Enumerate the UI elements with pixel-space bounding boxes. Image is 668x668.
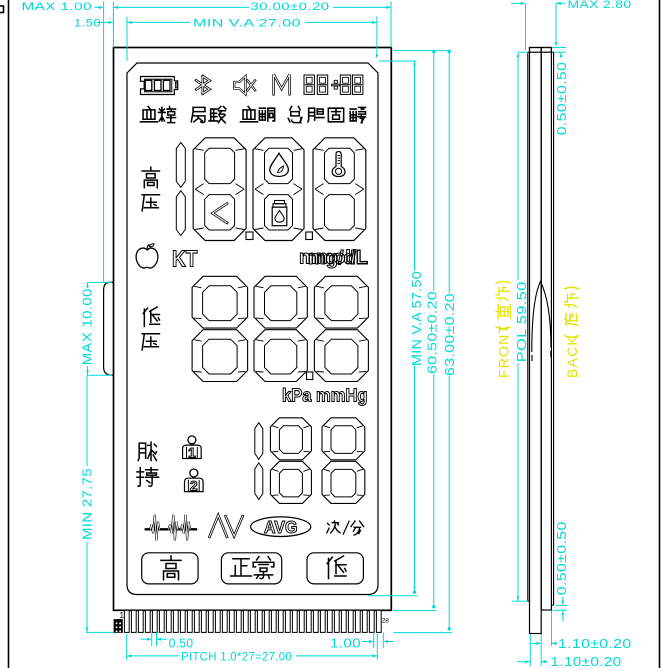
svg-text:mg/dL: mg/dL [308,248,368,269]
svg-text:1.10±0.20: 1.10±0.20 [558,636,632,651]
svg-text:MIN 27.75: MIN 27.75 [79,468,94,540]
svg-text:1.50: 1.50 [74,17,101,29]
svg-text:MAX 10.00: MAX 10.00 [80,288,95,365]
svg-text:2: 2 [190,477,198,493]
svg-text:63.00±0.20: 63.00±0.20 [442,293,457,376]
svg-text:MIN V.A 27.00: MIN V.A 27.00 [193,17,301,29]
svg-text:1: 1 [188,444,196,460]
svg-text:AVG: AVG [264,517,298,537]
svg-text:kPa mmHg: kPa mmHg [282,385,368,406]
svg-text:0.50: 0.50 [169,636,194,651]
svg-text:KT: KT [172,246,198,272]
svg-text:POL 59.50: POL 59.50 [514,281,529,362]
svg-text:0.50±0.50: 0.50±0.50 [554,62,569,136]
svg-text:MAX 1.00: MAX 1.00 [22,1,93,13]
svg-text:BACK: BACK [564,335,580,378]
svg-text:1.10±0.20: 1.10±0.20 [551,654,622,668]
svg-text:28: 28 [382,617,390,624]
svg-text:FRONT: FRONT [496,324,512,378]
svg-text:MIN V.A 57.50: MIN V.A 57.50 [409,271,424,366]
svg-text:0.50±0.50: 0.50±0.50 [554,521,569,595]
svg-text:1: 1 [120,611,125,620]
svg-text:60.50±0.20: 60.50±0.20 [425,291,440,374]
svg-text:MAX 2.80: MAX 2.80 [568,0,632,11]
svg-text:PITCH 1.0*27=27.00: PITCH 1.0*27=27.00 [181,652,292,664]
svg-text:1.00: 1.00 [330,636,361,651]
svg-text:30.00±0.20: 30.00±0.20 [251,1,330,13]
